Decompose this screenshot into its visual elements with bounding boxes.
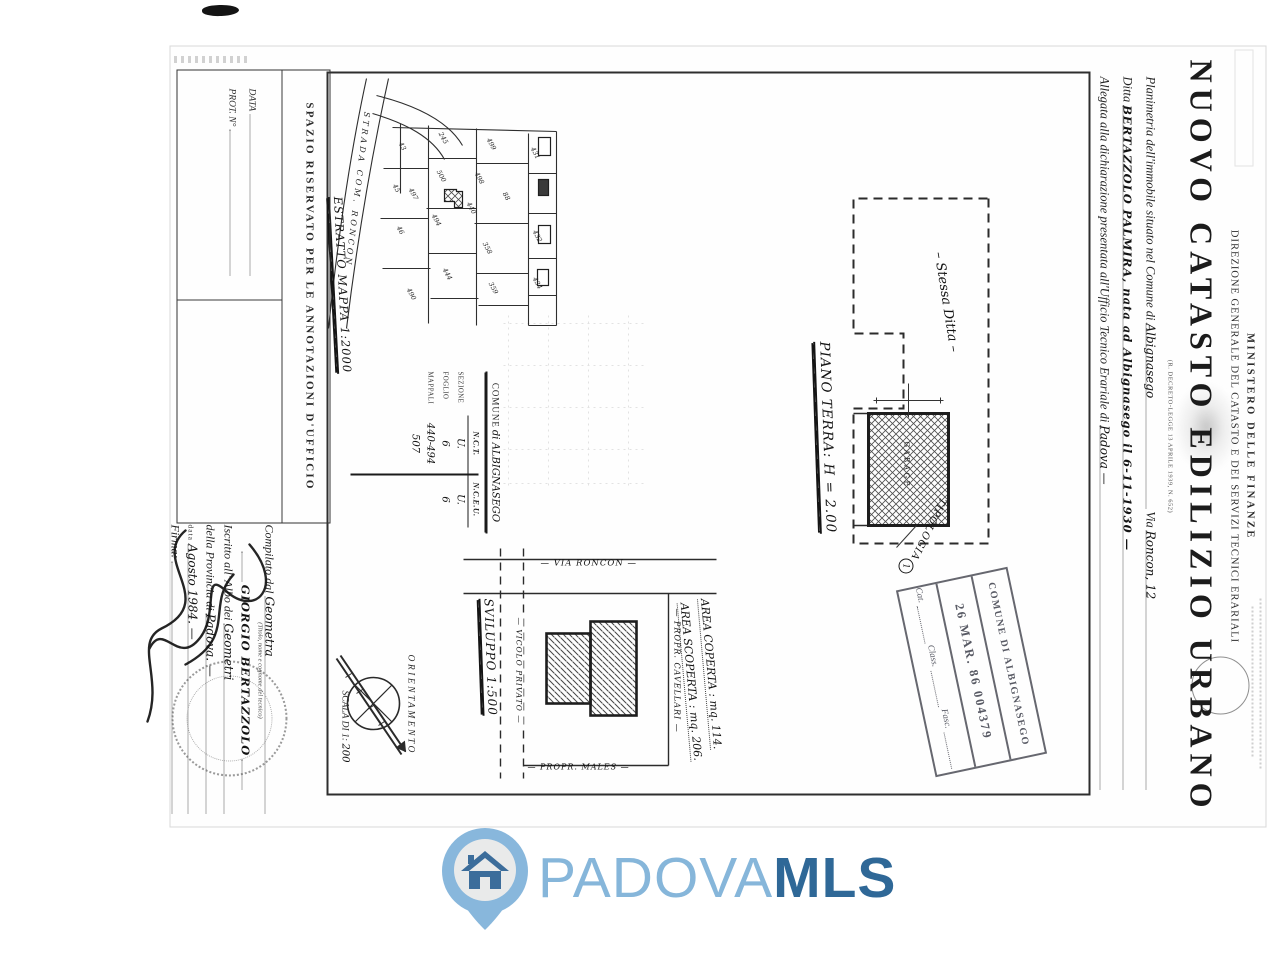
nct-header: N.C.T. <box>468 416 484 472</box>
foglio-nct: 6 <box>438 416 453 472</box>
via-roncon-label: — VIA RONCON — <box>541 559 637 569</box>
document-sheet: MINISTERO DELLE FINANZE DIREZIONE GENERA… <box>170 46 1267 828</box>
decree-reference: (R. DECRETO-LEGGE 13 APRILE 1939, N. 652… <box>1167 47 1174 827</box>
map-parcel-number: 46 <box>394 224 405 236</box>
via-value: Roncon, 12 <box>1144 531 1158 600</box>
comune-table: COMUNE di ALBIGNASEGO N.C.T. N.C.E.U. SE… <box>408 372 501 534</box>
map-parcel-number: 490 <box>404 286 417 302</box>
sezione-nceu: U. <box>453 472 468 528</box>
ministry-title: MINISTERO DELLE FINANZE <box>1245 47 1256 827</box>
direction-title: DIREZIONE GENERALE DEL CATASTO E DEI SER… <box>1229 47 1240 827</box>
map-parcel-number: 500 <box>435 169 448 184</box>
ditta-label: Ditta <box>1120 77 1135 103</box>
allegata-line: Allegata alla dichiarazione presentata a… <box>1097 77 1112 793</box>
mappali-nct: 440-494 <box>423 416 438 472</box>
stamp-fasc: Fasc. <box>940 708 954 729</box>
comune-table-title: COMUNE <box>491 383 501 428</box>
via-label: Via <box>1143 511 1158 527</box>
planimetria-line: Planimetria dell'immobile situato nel Co… <box>1143 77 1158 793</box>
private-road-label: — VICOLO PRIVATO — <box>515 615 524 727</box>
allegata-label: Allegata alla dichiarazione presentata a… <box>1097 77 1112 423</box>
padovamls-watermark: PADOVAMLS <box>438 826 896 930</box>
garage-label: GARAGE <box>903 442 911 489</box>
mappali-nceu <box>423 472 438 528</box>
map-parcel-number: 88 <box>501 191 512 202</box>
orientation-label: ORIENTAMENTO <box>406 655 416 755</box>
document-title: NUOVO CATASTO EDILIZIO URBANO <box>1183 47 1220 827</box>
stamp-cat: Cat. <box>914 587 927 604</box>
map-parcel-number: 43 <box>396 140 407 152</box>
map-parcel-numbers: 431 88 432 434 499 498 358 359 245 500 4… <box>390 130 543 302</box>
map-parcel-number: 359 <box>487 281 500 296</box>
scan-artifact-blob <box>202 4 239 16</box>
scale-value: 200 <box>340 743 351 762</box>
scanned-cadastral-document: MINISTERO DELLE FINANZE DIREZIONE GENERA… <box>0 0 1280 960</box>
map-parcel-number: 499 <box>484 136 497 152</box>
site-plan-building <box>547 622 637 716</box>
row-label-foglio: FOGLIO <box>438 372 453 416</box>
annotations-box: SPAZIO RISERVATO PER LE ANNOTAZIONI D'UF… <box>177 70 331 524</box>
signature <box>138 517 278 747</box>
brand-mls: MLS <box>773 846 896 910</box>
mappali-nct-2: 507 <box>408 416 423 472</box>
faint-print-line <box>1260 599 1262 769</box>
neighbor-right-label: — PROPR. MALES — <box>528 763 630 772</box>
brand-padova: PADOVA <box>538 846 773 910</box>
scan-artifact-text <box>174 56 248 63</box>
row-label-mappali: MAPPALI <box>423 372 438 416</box>
prot-label: PROT. N° <box>227 89 237 127</box>
map-parcel-number: 245 <box>436 130 449 146</box>
comune-value: Albignasego <box>1144 323 1158 398</box>
map-parcel-number: 497 <box>406 186 420 202</box>
map-parcel-number: 498 <box>472 170 485 186</box>
ghost-grid <box>504 316 644 486</box>
data-label: DATA <box>247 89 257 112</box>
map-parcel-number: 494 <box>429 212 442 228</box>
map-parcel-number: 440 <box>464 200 477 216</box>
map-parcel-number: 358 <box>481 241 494 256</box>
stamp-class: Class. <box>926 644 940 668</box>
row-label-sezione: SEZIONE <box>453 372 468 416</box>
annotations-title: SPAZIO RISERVATO PER LE ANNOTAZIONI D'UF… <box>304 71 316 523</box>
sezione-nct: U. <box>453 416 468 472</box>
comune-table-value: di ALBIGNASEGO <box>490 430 501 522</box>
map-parcel-number: 444 <box>440 266 453 282</box>
ditta-value: BERTAZZOLO PALMIRA, nata ad Albignasego … <box>1121 105 1135 551</box>
typology-number: 1 <box>899 559 914 574</box>
foglio-nceu: 6 <box>438 472 453 528</box>
scale-printed: SCALA DI 1: <box>340 691 350 742</box>
ditta-line: Ditta BERTAZZOLO PALMIRA, nata ad Albign… <box>1120 77 1135 793</box>
nceu-header: N.C.E.U. <box>468 472 484 528</box>
map-pin-house-icon <box>438 826 532 930</box>
erariale-value: Padova — <box>1098 425 1112 484</box>
neighbor-top-label: — PROPR. CAVELLARI — <box>673 609 682 733</box>
planimetria-label: Planimetria dell'immobile situato nel Co… <box>1143 77 1158 321</box>
scale-label: SCALA DI 1: 200 <box>340 691 351 763</box>
